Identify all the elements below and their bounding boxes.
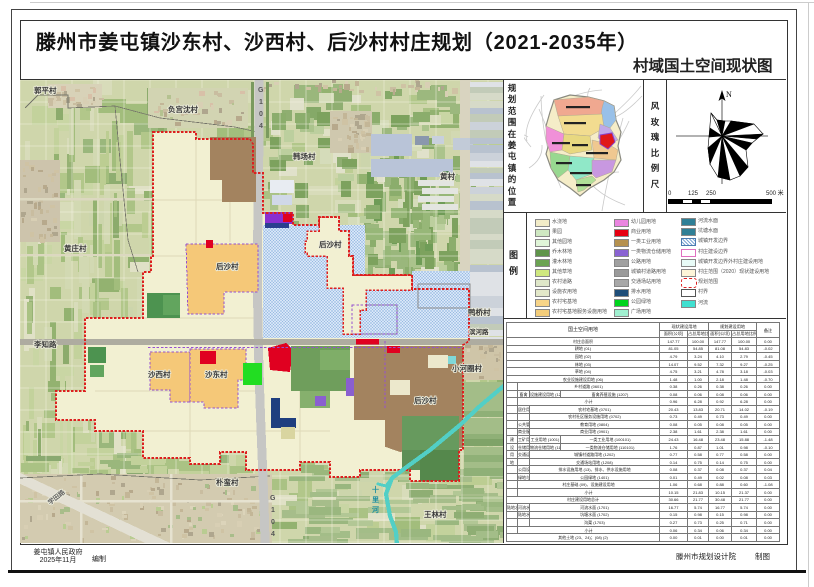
svg-text:负宫沈村: 负宫沈村 [168,104,198,114]
svg-text:250: 250 [706,191,717,197]
svg-text:后沙村: 后沙村 [414,395,437,405]
svg-text:0: 0 [259,111,263,118]
svg-text:N: N [726,90,732,99]
svg-text:500 米: 500 米 [766,189,784,197]
svg-text:朴蛮村: 朴蛮村 [216,477,239,487]
svg-text:G: G [270,495,276,502]
svg-text:滨河路: 滨河路 [469,327,489,336]
svg-text:1: 1 [271,507,275,514]
svg-text:G: G [258,87,264,94]
svg-text:里: 里 [372,495,379,504]
svg-text:王林村: 王林村 [424,509,447,519]
svg-text:黄庄村: 黄庄村 [64,243,87,253]
svg-text:沙东村: 沙东村 [205,369,228,379]
svg-text:鸭桥村: 鸭桥村 [468,307,491,317]
svg-text:小河圈村: 小河圈村 [452,363,482,373]
svg-text:郭平村: 郭平村 [34,85,57,95]
svg-text:4: 4 [271,531,275,538]
svg-text:韩场村: 韩场村 [293,151,316,161]
svg-text:河: 河 [372,505,379,514]
svg-text:沙西村: 沙西村 [148,369,171,379]
svg-text:4: 4 [259,123,263,130]
svg-text:0: 0 [668,191,672,197]
svg-text:李知路: 李知路 [33,339,57,349]
svg-text:125: 125 [688,191,699,197]
svg-text:后沙村: 后沙村 [216,261,239,271]
svg-text:1: 1 [259,99,263,106]
svg-text:后沙村: 后沙村 [319,239,342,249]
svg-text:黄村: 黄村 [440,171,455,181]
svg-text:0: 0 [271,519,275,526]
svg-text:十: 十 [372,485,379,494]
